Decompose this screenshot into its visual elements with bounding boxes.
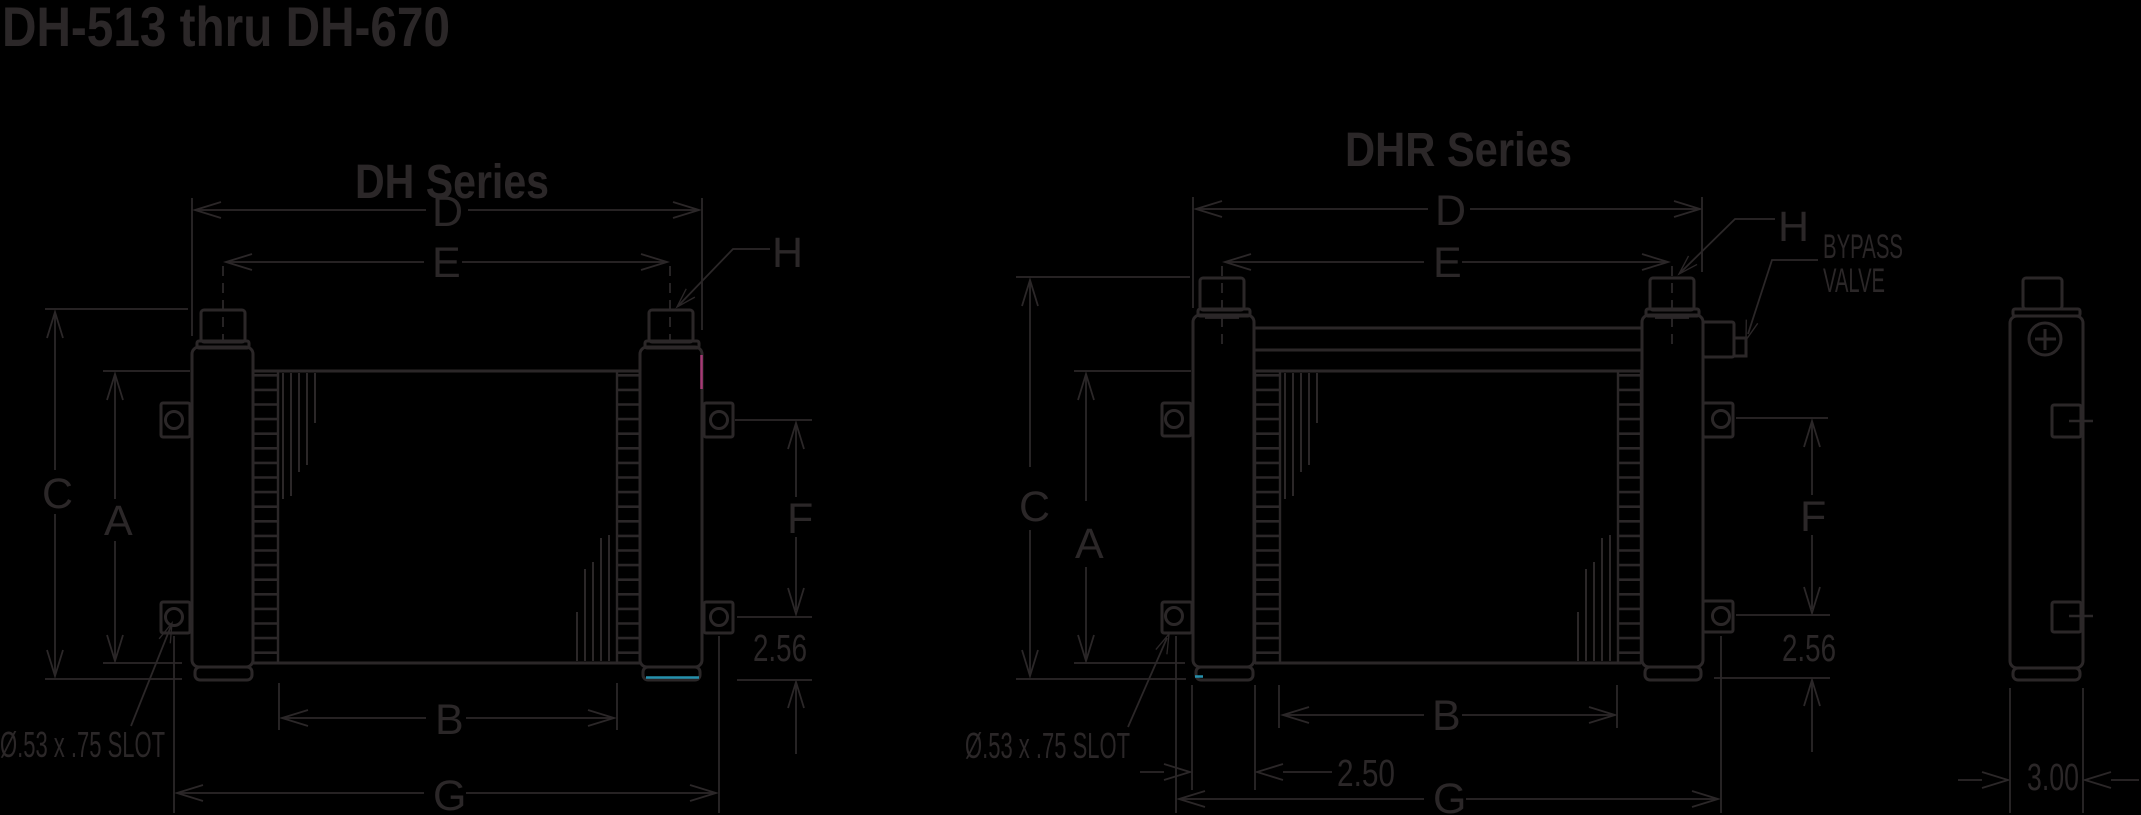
dh-slot-note: Ø.53 x .75 SLOT (0, 724, 165, 765)
dh-left-tank (192, 310, 253, 680)
side-view: 3.00 (1958, 278, 2139, 813)
dhr-dimension-a: A (1074, 371, 1191, 663)
dh-right-tank (640, 310, 702, 680)
dhr-port-callout-h: H (1675, 203, 1809, 278)
dhr-slot-callout: Ø.53 x .75 SLOT (965, 632, 1175, 766)
technical-drawing: DH-513 thru DH-670 DH Series DHR Series (0, 0, 2141, 815)
dh-port-callout-h: H (673, 229, 803, 311)
side-dimension-3-00: 3.00 (1958, 688, 2139, 813)
dh-dim-label-h: H (772, 229, 803, 277)
dhr-dim-label-c: C (1019, 483, 1050, 531)
side-tank-foot (2013, 668, 2080, 680)
dh-dim-label-g: G (433, 772, 466, 815)
dh-slot-callout: Ø.53 x .75 SLOT (0, 621, 178, 765)
dhr-dim-label-f: F (1800, 493, 1826, 541)
dhr-dimension-c: C (1016, 277, 1190, 679)
dh-right-fin-strip (617, 371, 640, 664)
dhr-dim-label-g: G (1433, 775, 1466, 815)
dh-dim-label-c: C (42, 470, 73, 518)
dhr-series-view: D E H BYPASS VALVE (965, 187, 1903, 815)
dh-fin-break-lines-top (283, 373, 315, 499)
dh-dim-label-e: E (432, 239, 461, 287)
side-port-fitting (2023, 278, 2062, 309)
dh-mounting-brackets (161, 403, 733, 633)
dhr-series-title: DHR Series (1345, 124, 1572, 177)
dh-dimension-b: B (279, 683, 617, 744)
dhr-dim-label-a: A (1075, 520, 1104, 568)
page-title: DH-513 thru DH-670 (2, 0, 450, 58)
dhr-dim-label-d: D (1435, 187, 1466, 235)
dh-series-view: D E H C (0, 188, 813, 815)
dh-dim-label-a: A (104, 497, 133, 545)
dh-dimension-a: A (103, 371, 190, 663)
dhr-bypass-label-line2: VALVE (1823, 262, 1885, 300)
dh-dim-label-d: D (432, 188, 463, 236)
dhr-core (1255, 371, 1641, 664)
dh-dimension-2-56: 2.56 (737, 628, 812, 754)
dhr-bypass-label-line1: BYPASS (1823, 228, 1903, 266)
dhr-bypass-valve (1703, 322, 1746, 357)
dhr-dimension-2-56: 2.56 (1714, 628, 1836, 752)
dhr-dimension-2-50: 2.50 (1140, 685, 1395, 795)
dhr-fin-break-lines-bottom (1578, 535, 1610, 661)
dhr-dim-label-e: E (1433, 239, 1462, 287)
catalog-page: DH-513 thru DH-670 DH Series DHR Series (0, 0, 2141, 815)
dh-core (253, 371, 640, 664)
dhr-dimension-f: F (1736, 418, 1830, 615)
side-port-boss (2029, 323, 2061, 355)
dh-left-fin-strip (253, 371, 278, 664)
dh-dim-label-f: F (787, 495, 813, 543)
dhr-dim-label-2-50: 2.50 (1337, 753, 1395, 795)
dhr-slot-note: Ø.53 x .75 SLOT (965, 725, 1130, 766)
dh-dim-label-2-56: 2.56 (753, 628, 807, 670)
dh-dim-label-b: B (435, 696, 464, 744)
dhr-dim-label-h: H (1778, 203, 1809, 251)
side-dim-label-3-00: 3.00 (2027, 757, 2079, 799)
dhr-left-tank (1193, 278, 1254, 680)
dhr-right-fin-strip (1618, 371, 1641, 664)
dhr-mounting-brackets (1162, 403, 1733, 633)
dhr-dim-label-b: B (1432, 692, 1461, 740)
dhr-dimension-b: B (1279, 685, 1617, 740)
dh-right-port-fitting (649, 310, 693, 342)
dh-dimension-f: F (735, 420, 813, 617)
dh-dimension-e: E (223, 239, 670, 341)
side-mounting-brackets (2052, 405, 2093, 632)
dhr-bypass-valve-callout: BYPASS VALVE (1740, 228, 1903, 342)
dhr-dim-label-2-56: 2.56 (1782, 628, 1836, 670)
dhr-fin-break-lines-top (1285, 373, 1317, 499)
dh-fin-break-lines-bottom (577, 535, 609, 661)
dhr-bypass-tube (1254, 328, 1642, 350)
dhr-left-fin-strip (1255, 371, 1280, 664)
